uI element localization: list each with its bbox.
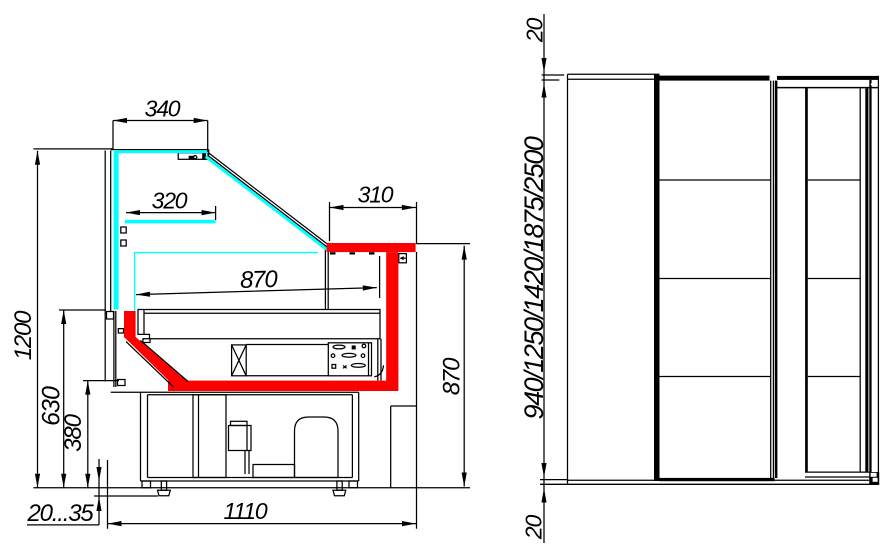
svg-text:380: 380 bbox=[60, 413, 87, 451]
svg-text:870: 870 bbox=[439, 357, 466, 395]
svg-text:940/1250/1420/1875/2500: 940/1250/1420/1875/2500 bbox=[519, 136, 549, 419]
svg-text:870: 870 bbox=[240, 266, 279, 294]
svg-text:1110: 1110 bbox=[224, 498, 268, 524]
svg-text:20: 20 bbox=[522, 18, 548, 44]
svg-text:340: 340 bbox=[145, 96, 181, 122]
svg-text:310: 310 bbox=[358, 182, 394, 208]
svg-text:320: 320 bbox=[152, 188, 188, 214]
svg-text:20...35: 20...35 bbox=[27, 500, 95, 527]
svg-text:1200: 1200 bbox=[10, 310, 37, 360]
svg-text:20: 20 bbox=[521, 515, 547, 541]
